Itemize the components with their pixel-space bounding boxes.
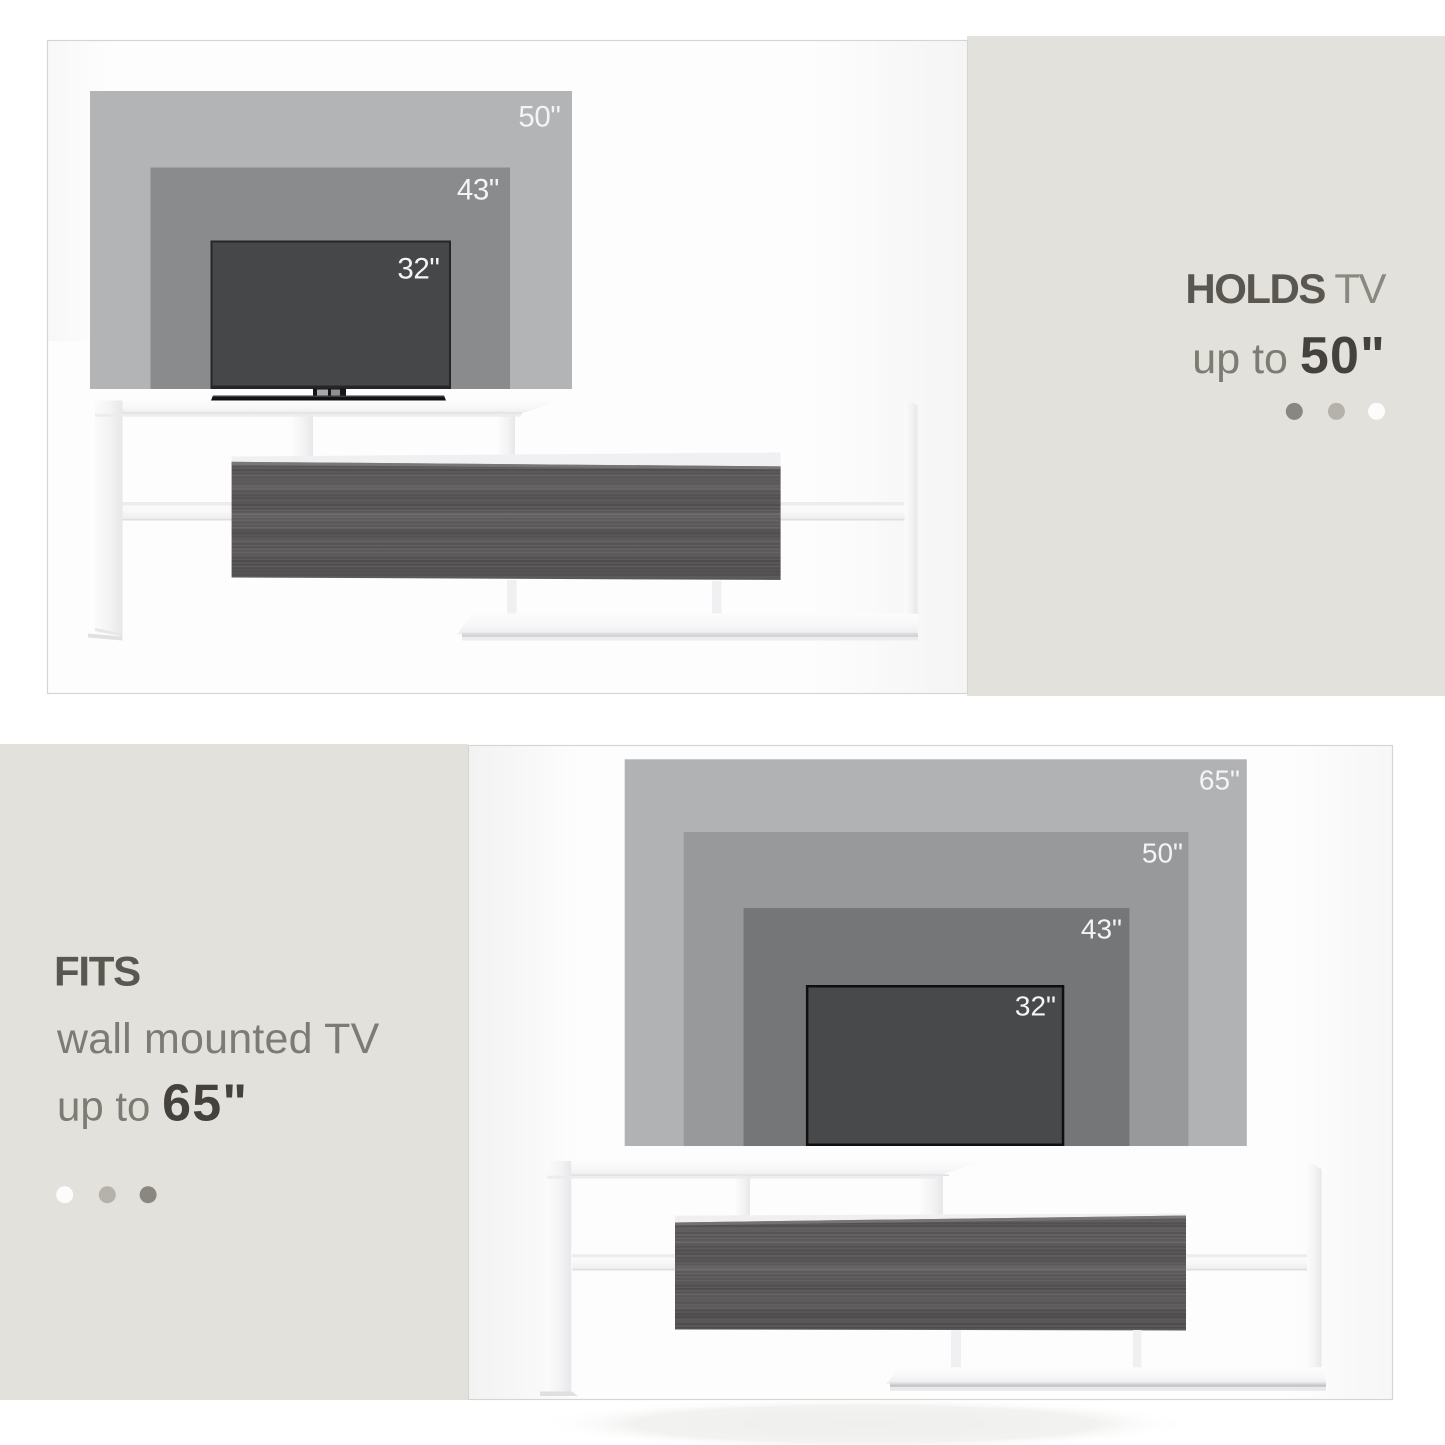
svg-text:43": 43" bbox=[457, 174, 499, 207]
svg-text:FITS: FITS bbox=[54, 948, 140, 995]
svg-text:50": 50" bbox=[518, 101, 560, 134]
svg-text:32": 32" bbox=[397, 253, 439, 286]
svg-text:50": 50" bbox=[1142, 837, 1183, 868]
svg-text:65": 65" bbox=[1199, 765, 1240, 796]
svg-text:wall mounted TV: wall mounted TV bbox=[56, 1015, 380, 1063]
svg-text:up to 50": up to 50" bbox=[1192, 327, 1386, 385]
svg-text:up to 65": up to 65" bbox=[57, 1075, 248, 1133]
svg-text:32": 32" bbox=[1015, 990, 1056, 1021]
svg-text:43": 43" bbox=[1081, 913, 1122, 944]
svg-text:HOLDS TV: HOLDS TV bbox=[1185, 265, 1386, 312]
